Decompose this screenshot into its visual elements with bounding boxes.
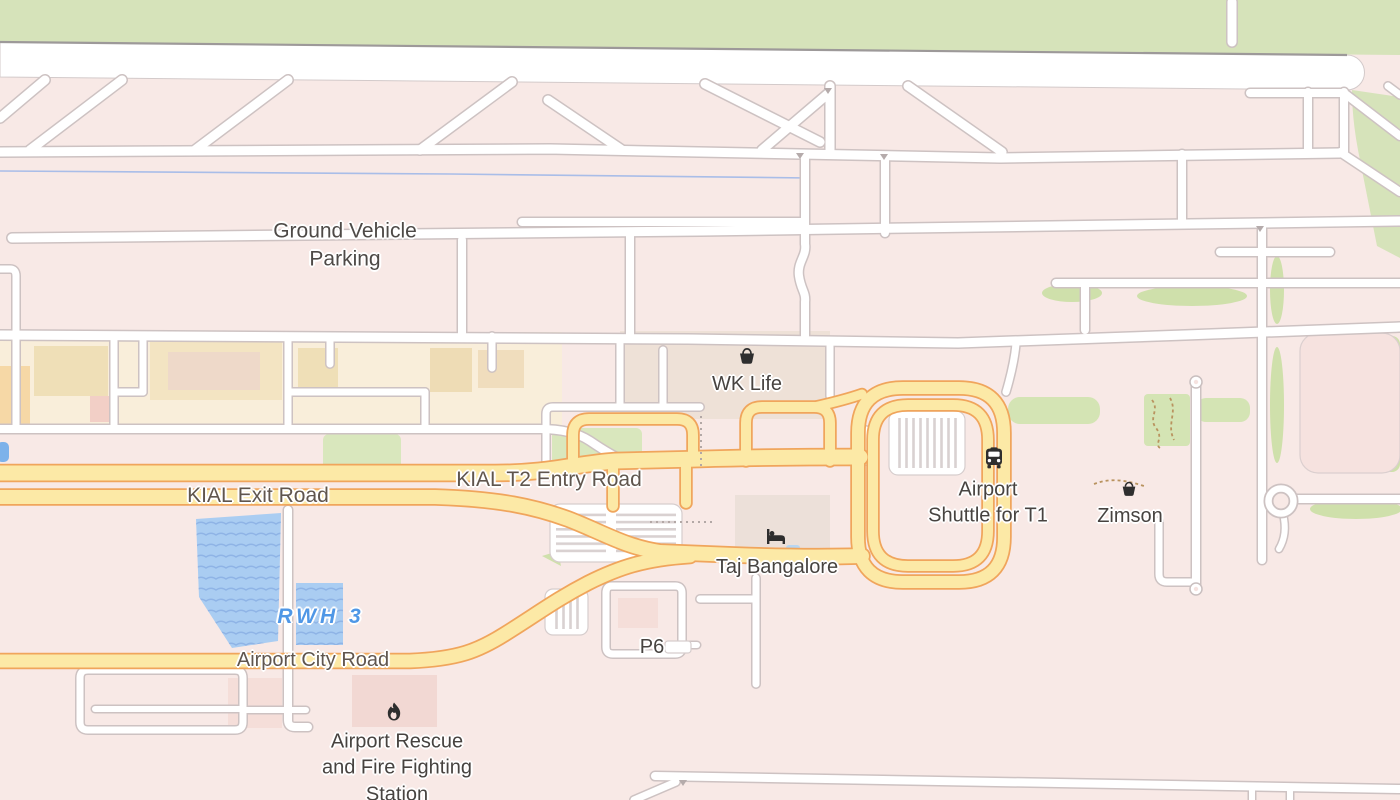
label-airport-shuttle-t1[interactable]: Airport Shuttle for T1	[928, 477, 1048, 530]
label-wk-life[interactable]: WK Life	[712, 371, 782, 397]
label-airport-city-road: Airport City Road	[237, 647, 389, 673]
label-taj-bangalore[interactable]: Taj Bangalore	[716, 554, 838, 580]
label-fire-station[interactable]: Airport Rescue and Fire Fighting Station	[322, 728, 472, 800]
label-kial-t2-entry-road: KIAL T2 Entry Road	[456, 466, 642, 494]
label-kial-exit-road: KIAL Exit Road	[187, 482, 329, 510]
label-rwh-3: RWH 3	[277, 603, 364, 631]
label-zimson[interactable]: Zimson	[1097, 503, 1163, 529]
label-p6[interactable]: P6	[640, 634, 664, 660]
map-canvas[interactable]	[0, 0, 1400, 800]
map-viewport[interactable]: Ground Vehicle Parking WK Life KIAL T2 E…	[0, 0, 1400, 800]
label-ground-vehicle-parking: Ground Vehicle Parking	[273, 217, 417, 272]
